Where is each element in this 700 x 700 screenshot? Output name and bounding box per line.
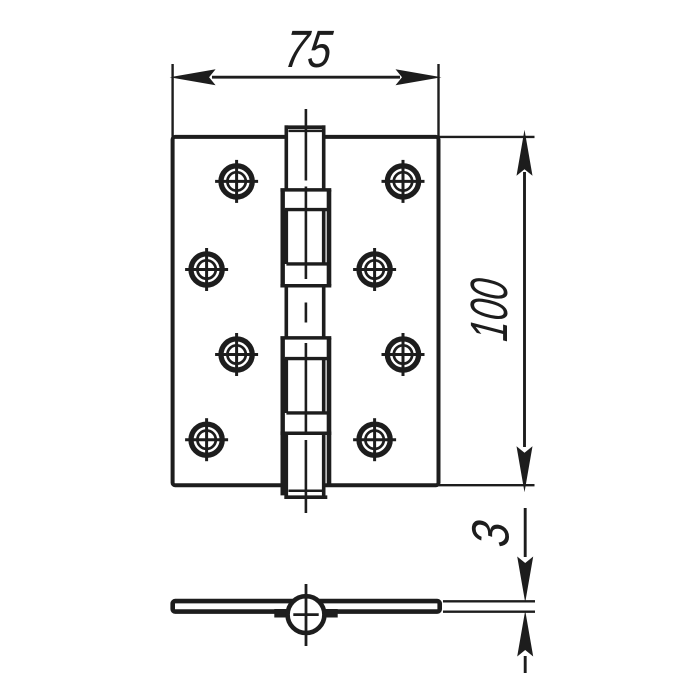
svg-text:100: 100 xyxy=(460,275,519,344)
svg-text:75: 75 xyxy=(281,21,335,79)
